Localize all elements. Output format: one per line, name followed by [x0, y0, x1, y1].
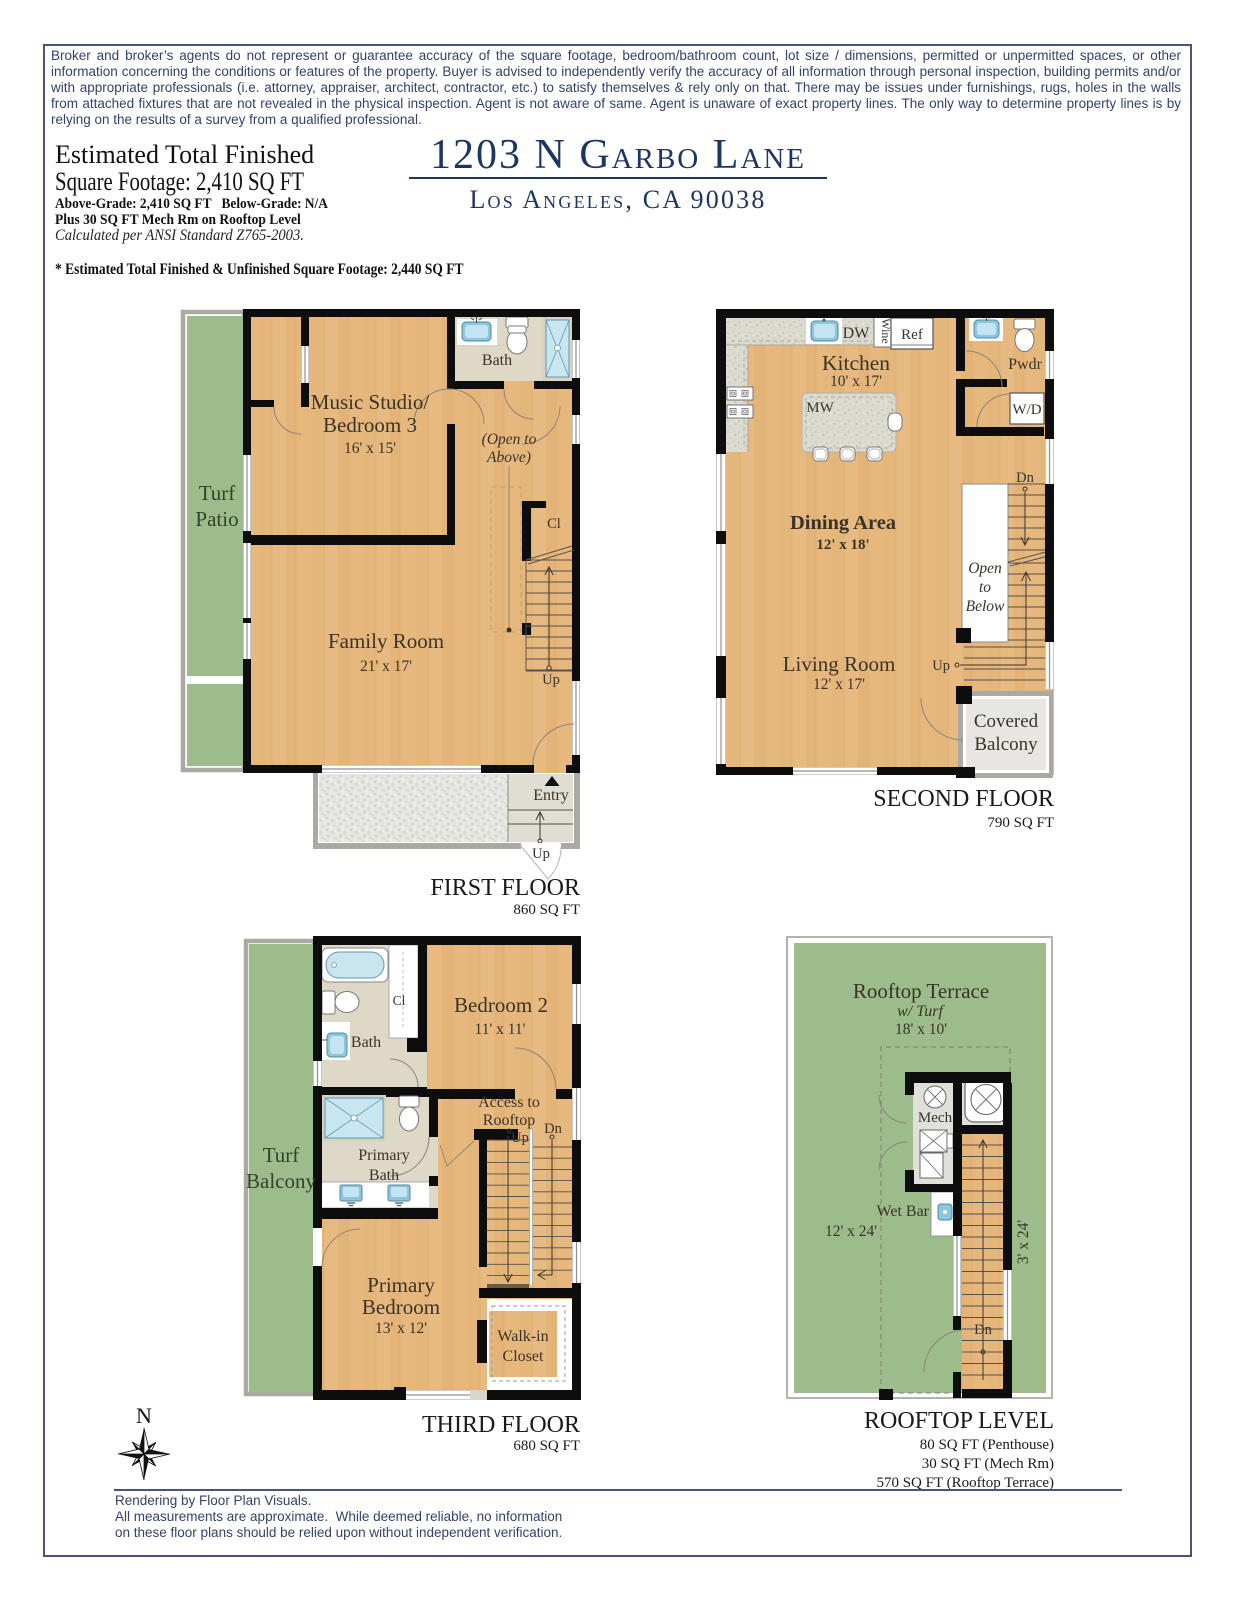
svg-text:10' x 17': 10' x 17'	[830, 373, 882, 390]
svg-text:Open: Open	[968, 560, 1002, 577]
svg-text:11' x 11': 11' x 11'	[475, 1021, 526, 1038]
svg-text:Below: Below	[966, 598, 1005, 615]
svg-text:Covered: Covered	[974, 711, 1039, 732]
svg-text:Mech: Mech	[918, 1110, 953, 1126]
svg-text:Pwdr: Pwdr	[1008, 356, 1042, 373]
svg-text:THIRD FLOOR: THIRD FLOOR	[422, 1412, 580, 1438]
svg-text:12' x 18': 12' x 18'	[816, 537, 869, 553]
svg-text:Primary: Primary	[358, 1147, 410, 1164]
svg-text:21' x 17': 21' x 17'	[360, 658, 412, 675]
svg-text:Bath: Bath	[351, 1034, 381, 1051]
svg-text:Living Room: Living Room	[783, 652, 896, 676]
svg-text:Bath: Bath	[482, 352, 512, 369]
svg-text:Rooftop Terrace: Rooftop Terrace	[853, 979, 989, 1003]
svg-text:680 SQ FT: 680 SQ FT	[513, 1438, 580, 1454]
svg-text:Wet Bar: Wet Bar	[877, 1203, 930, 1220]
svg-text:790 SQ FT: 790 SQ FT	[987, 815, 1054, 831]
svg-text:Balcony: Balcony	[246, 1169, 316, 1193]
svg-text:Dining Area: Dining Area	[790, 512, 896, 534]
svg-text:Bedroom 2: Bedroom 2	[454, 993, 548, 1017]
svg-text:12' x 24': 12' x 24'	[825, 1223, 877, 1240]
svg-text:Dn: Dn	[1016, 470, 1034, 486]
svg-text:Above): Above)	[486, 449, 531, 466]
svg-text:Bedroom: Bedroom	[362, 1295, 440, 1319]
svg-text:Primary: Primary	[367, 1273, 435, 1297]
svg-text:Access to: Access to	[478, 1094, 540, 1111]
svg-text:Walk-in: Walk-in	[497, 1328, 548, 1345]
svg-text:Dn: Dn	[544, 1121, 562, 1137]
svg-text:w/ Turf: w/ Turf	[897, 1003, 945, 1020]
svg-text:Balcony: Balcony	[974, 734, 1038, 755]
svg-text:N: N	[136, 1403, 152, 1428]
svg-text:Rooftop: Rooftop	[483, 1112, 535, 1129]
svg-text:Bedroom 3: Bedroom 3	[323, 413, 417, 437]
svg-text:80 SQ FT (Penthouse): 80 SQ FT (Penthouse)	[920, 1437, 1054, 1453]
svg-text:W/D: W/D	[1012, 402, 1041, 418]
svg-text:13' x 12': 13' x 12'	[375, 1320, 427, 1337]
svg-text:(Open to: (Open to	[482, 431, 537, 448]
svg-text:Dn: Dn	[974, 1322, 992, 1338]
svg-text:Family Room: Family Room	[328, 629, 444, 653]
svg-text:Turf: Turf	[199, 481, 236, 505]
svg-text:SECOND FLOOR: SECOND FLOOR	[873, 786, 1054, 812]
svg-text:Turf: Turf	[263, 1143, 300, 1167]
svg-text:Entry: Entry	[533, 787, 569, 804]
svg-text:Up: Up	[932, 658, 950, 674]
svg-text:Patio: Patio	[195, 507, 238, 531]
svg-text:16' x 15': 16' x 15'	[344, 440, 396, 457]
svg-text:FIRST FLOOR: FIRST FLOOR	[430, 875, 580, 901]
svg-text:Up: Up	[511, 1130, 529, 1146]
svg-text:Bath: Bath	[369, 1167, 399, 1184]
svg-text:860 SQ FT: 860 SQ FT	[513, 902, 580, 918]
svg-text:Up: Up	[532, 846, 550, 862]
svg-text:Closet: Closet	[503, 1348, 544, 1365]
svg-text:18' x 10': 18' x 10'	[895, 1021, 947, 1038]
svg-text:Cl: Cl	[393, 993, 406, 1008]
svg-text:3' x 24': 3' x 24'	[1015, 1220, 1032, 1265]
svg-text:12' x 17': 12' x 17'	[813, 676, 865, 693]
svg-text:Kitchen: Kitchen	[822, 351, 890, 375]
svg-text:30 SQ FT (Mech Rm): 30 SQ FT (Mech Rm)	[922, 1456, 1054, 1472]
svg-text:Up: Up	[542, 672, 560, 688]
svg-text:ROOFTOP LEVEL: ROOFTOP LEVEL	[864, 1408, 1054, 1434]
svg-text:Cl: Cl	[547, 516, 561, 532]
svg-text:DW: DW	[843, 325, 871, 342]
svg-text:Ref: Ref	[901, 327, 923, 343]
svg-text:Music Studio/: Music Studio/	[311, 390, 430, 414]
svg-text:to: to	[979, 579, 991, 596]
svg-text:MW: MW	[806, 400, 834, 416]
